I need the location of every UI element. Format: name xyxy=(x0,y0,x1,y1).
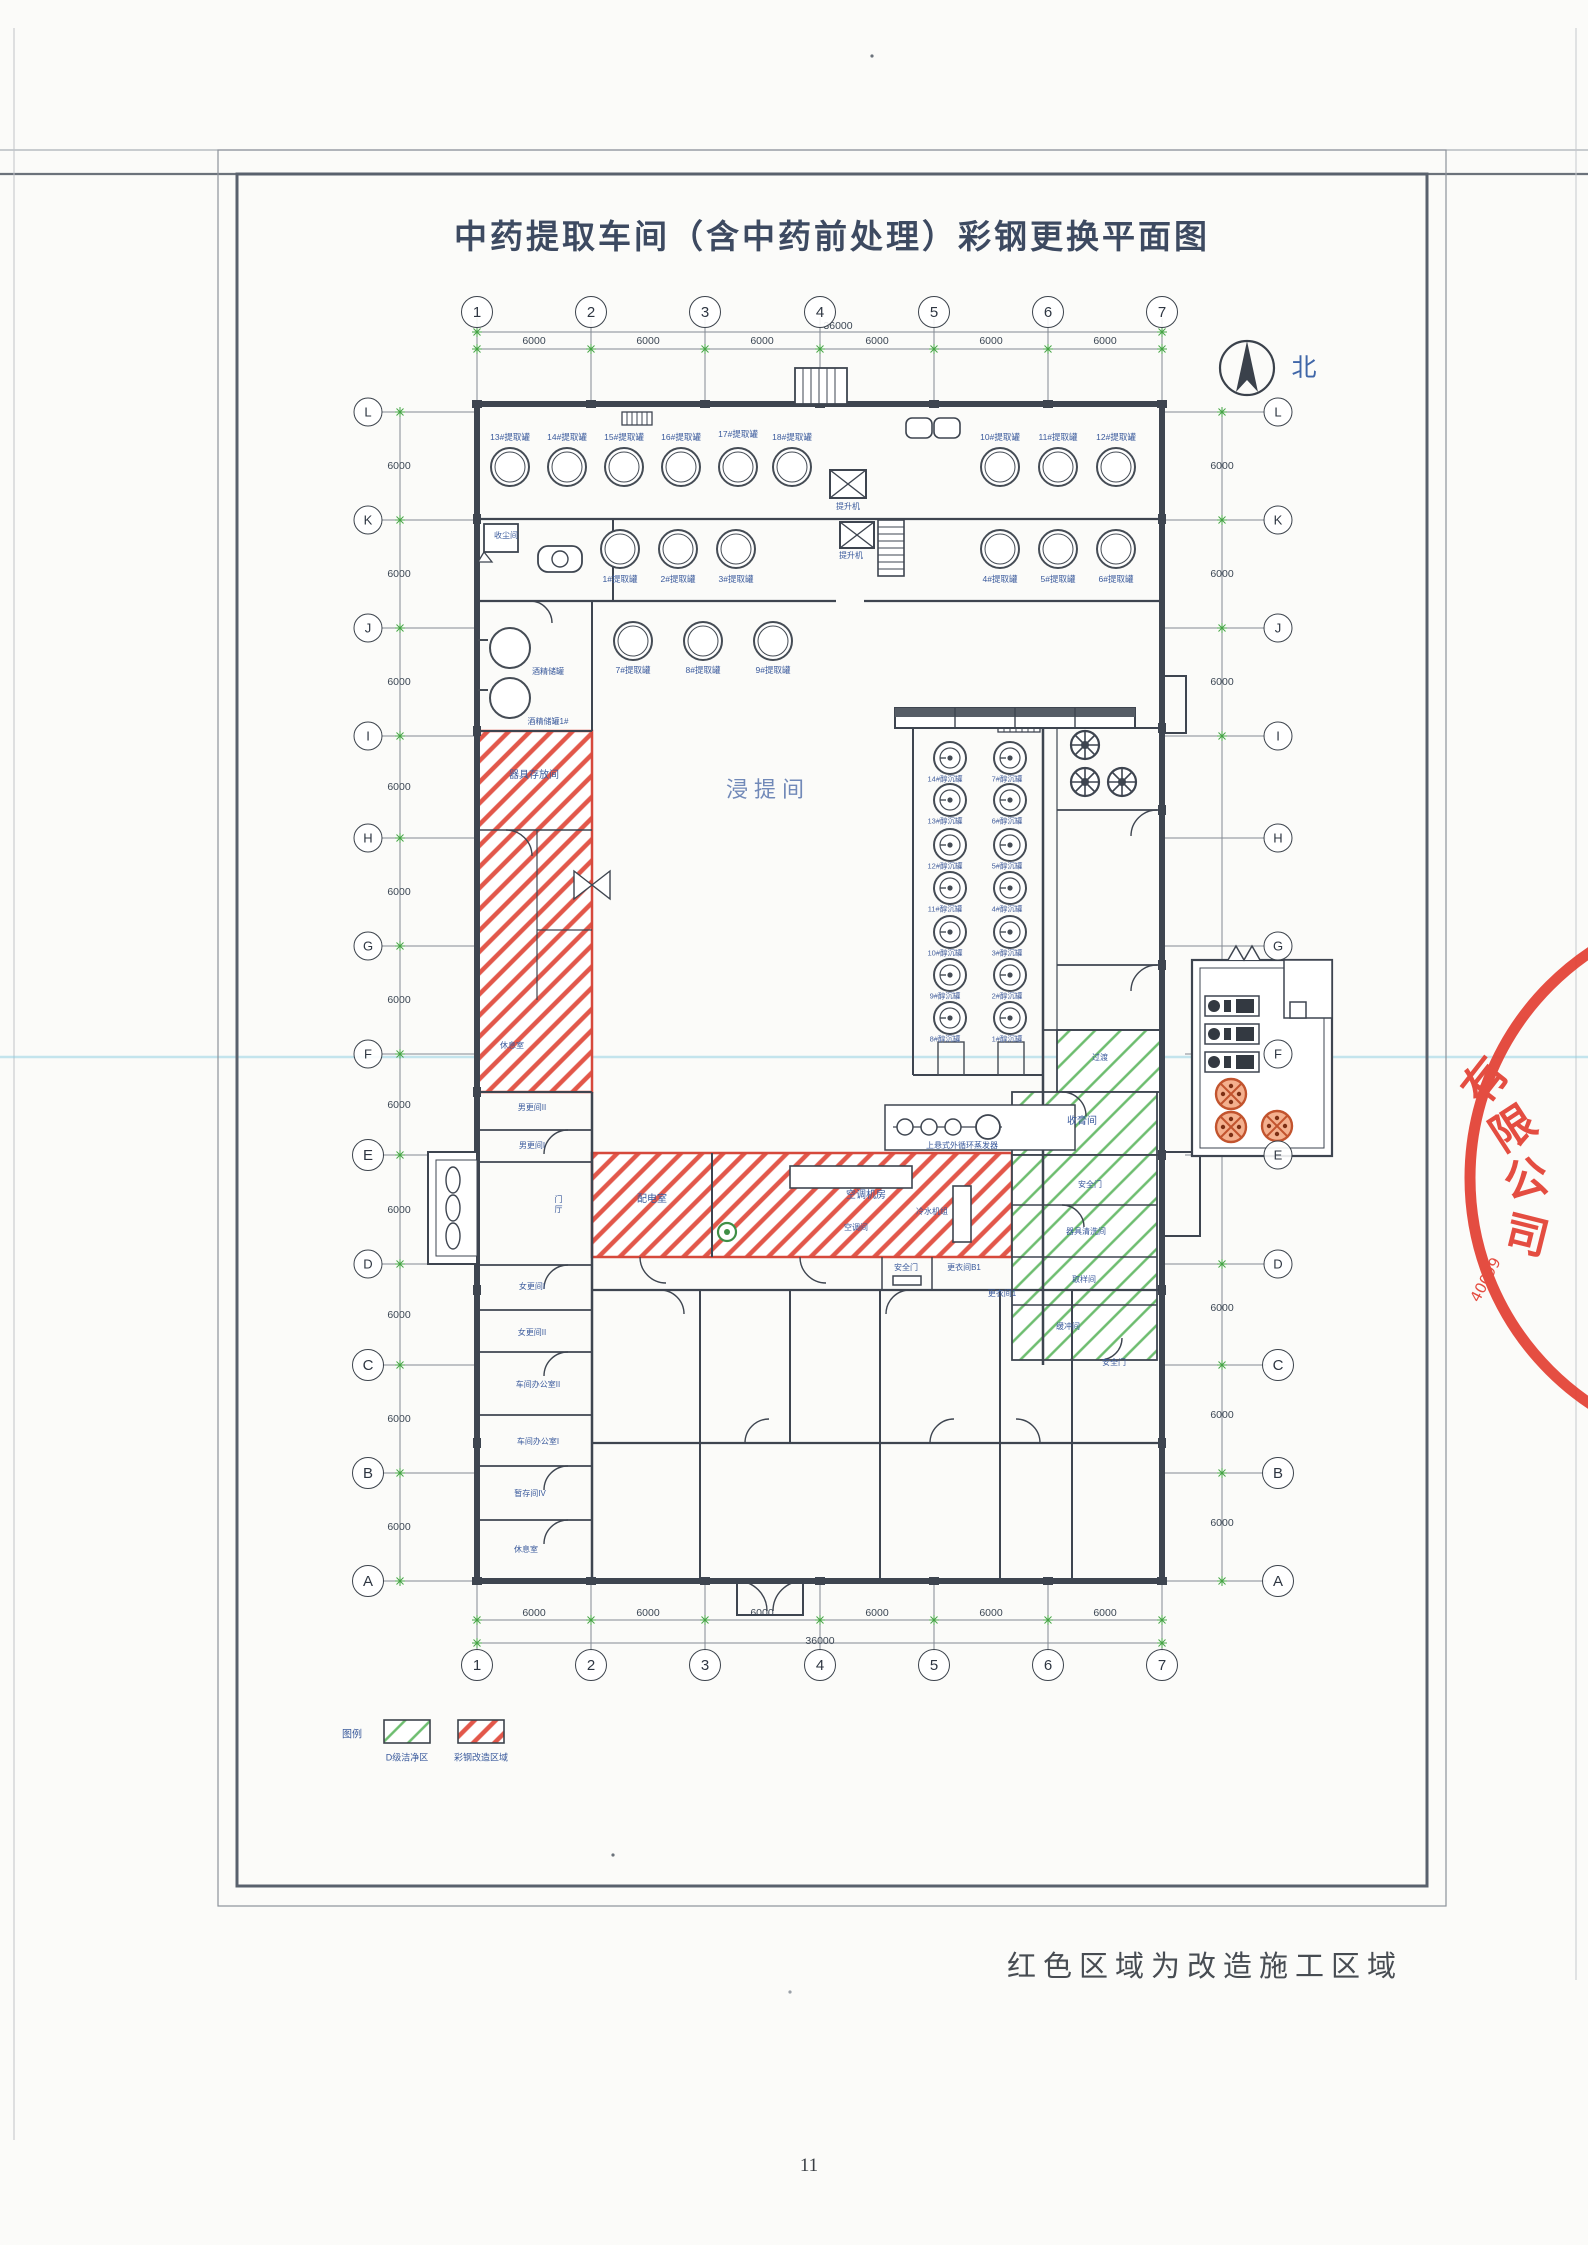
room-label: 空调间 xyxy=(844,1224,868,1232)
tank-label: 10#提取罐 xyxy=(980,433,1020,442)
dim-bay: 6000 xyxy=(1093,335,1116,347)
grid-col-bubble-bot-5: 5 xyxy=(918,1649,950,1681)
dim-bay: 6000 xyxy=(522,335,545,347)
grid-row-bubble-right-G: G xyxy=(1264,932,1293,961)
room-label: 缓冲间 xyxy=(1056,1323,1080,1331)
seal-char-3: 公 xyxy=(1499,1151,1552,1208)
room-label: 取样间 xyxy=(1072,1276,1096,1284)
extraction-tanks-row3 xyxy=(614,622,792,660)
floor-plan-drawing: 有 限 公 司 40099 xyxy=(0,0,1588,2245)
grid-row-bubble-left-A: A xyxy=(352,1565,384,1597)
grid-row-bubble-left-G: G xyxy=(354,932,383,961)
dim-bay: 6000 xyxy=(979,1607,1002,1619)
room-label: 女更间II xyxy=(518,1329,546,1337)
grid-col-bubble-bot-2: 2 xyxy=(575,1649,607,1681)
dim-bay: 6000 xyxy=(1093,1607,1116,1619)
tank-label: 1#提取罐 xyxy=(603,575,638,584)
room-label: 休息室 xyxy=(514,1546,538,1554)
tank-label: 14#醇沉罐 xyxy=(927,775,962,783)
room-label: 门厅 xyxy=(554,1195,562,1215)
grid-row-bubble-left-E: E xyxy=(352,1139,384,1171)
dim-bay: 6000 xyxy=(387,1413,410,1425)
legend-clean-label: D级洁净区 xyxy=(386,1751,429,1764)
tank-label: 7#提取罐 xyxy=(616,666,651,675)
tank-label: 3#醇沉罐 xyxy=(992,949,1023,957)
hoist-label: 提升机 xyxy=(839,552,863,560)
grid-col-bubble-top-7: 7 xyxy=(1146,296,1178,328)
dim-bay: 6000 xyxy=(1210,568,1233,580)
grid-row-bubble-left-F: F xyxy=(354,1040,383,1069)
grid-row-bubble-left-K: K xyxy=(354,506,383,535)
tank-label: 13#醇沉罐 xyxy=(927,817,962,825)
dim-bay: 6000 xyxy=(750,1607,773,1619)
grid-row-bubble-left-L: L xyxy=(354,398,383,427)
cooling-annex xyxy=(1192,946,1332,1156)
dim-bay: 6000 xyxy=(1210,676,1233,688)
dim-bay: 6000 xyxy=(1210,460,1233,472)
grid-col-bubble-top-2: 2 xyxy=(575,296,607,328)
grid-row-bubble-left-D: D xyxy=(354,1250,383,1279)
tank-label: 15#提取罐 xyxy=(604,433,644,442)
alcohol-tank-label: 酒精储罐1# xyxy=(528,718,569,726)
room-label: 暂存间IV xyxy=(514,1490,546,1498)
room-label: 车间办公室I xyxy=(517,1438,559,1446)
room-label: 过渡 xyxy=(1092,1054,1108,1062)
grid-row-bubble-right-I: I xyxy=(1264,722,1293,751)
grid-col-bubble-top-3: 3 xyxy=(689,296,721,328)
room-label: 更衣间B1 xyxy=(947,1264,981,1272)
conveyor xyxy=(895,708,1135,728)
grid-col-bubble-bot-7: 7 xyxy=(1146,1649,1178,1681)
room-label: 车间办公室II xyxy=(516,1381,560,1389)
tank-label: 5#醇沉罐 xyxy=(992,862,1023,870)
dim-bay: 6000 xyxy=(750,335,773,347)
grid-row-bubble-left-H: H xyxy=(354,824,383,853)
dim-bay: 6000 xyxy=(387,568,410,580)
grid-row-bubble-right-E: E xyxy=(1264,1141,1293,1170)
legend-heading: 图例 xyxy=(342,1726,362,1741)
dim-bay: 6000 xyxy=(1210,1517,1233,1529)
entrance-vestibule xyxy=(428,1152,477,1264)
legend-renovation-label: 彩钢改造区域 xyxy=(454,1751,508,1764)
grid-row-bubble-left-B: B xyxy=(352,1457,384,1489)
dim-bay: 6000 xyxy=(387,781,410,793)
dim-bay: 6000 xyxy=(387,1099,410,1111)
dim-bay: 6000 xyxy=(1210,1409,1233,1421)
grid-col-bubble-top-4: 4 xyxy=(804,296,836,328)
tank-label: 4#提取罐 xyxy=(983,575,1018,584)
room-label: 配电室 xyxy=(637,1195,667,1205)
tank-label: 6#醇沉罐 xyxy=(992,817,1023,825)
room-label: 安全门 xyxy=(1078,1181,1102,1189)
red-area-note: 红色区域为改造施工区域 xyxy=(1007,1943,1403,1985)
tank-label: 3#提取罐 xyxy=(719,575,754,584)
tank-label: 9#提取罐 xyxy=(756,666,791,675)
room-label: 收尘间 xyxy=(494,532,518,540)
north-arrow-icon xyxy=(1220,341,1274,395)
grid-col-bubble-bot-4: 4 xyxy=(804,1649,836,1681)
grid-col-bubble-bot-6: 6 xyxy=(1032,1649,1064,1681)
grid-row-bubble-right-D: D xyxy=(1264,1250,1293,1279)
dim-bay: 6000 xyxy=(979,335,1002,347)
room-label: 安全门 xyxy=(894,1264,918,1272)
grid-col-bubble-top-5: 5 xyxy=(918,296,950,328)
dim-bay: 6000 xyxy=(1210,1302,1233,1314)
grid-row-bubble-left-I: I xyxy=(354,722,383,751)
room-label: 器具存放间 xyxy=(509,771,559,781)
tank-label: 4#醇沉罐 xyxy=(992,905,1023,913)
grid-row-bubble-right-K: K xyxy=(1264,506,1293,535)
clean-zones xyxy=(1012,1030,1162,1360)
tank-label: 10#醇沉罐 xyxy=(927,949,962,957)
tank-label: 12#提取罐 xyxy=(1096,433,1136,442)
tank-label: 14#提取罐 xyxy=(547,433,587,442)
dim-bay: 6000 xyxy=(865,335,888,347)
dim-bay: 6000 xyxy=(387,460,410,472)
north-label: 北 xyxy=(1291,348,1316,384)
tank-label: 11#提取罐 xyxy=(1038,433,1077,442)
alcohol-tank-label: 酒精储罐 xyxy=(532,668,564,676)
grid-row-bubble-left-C: C xyxy=(352,1349,384,1381)
room-label: 女更间I xyxy=(519,1283,545,1291)
seal-char-4: 司 xyxy=(1499,1207,1554,1265)
tank-label: 12#醇沉罐 xyxy=(927,862,962,870)
tank-label: 1#醇沉罐 xyxy=(992,1035,1023,1043)
tank-label: 8#醇沉罐 xyxy=(930,1035,961,1043)
tank-label: 2#提取罐 xyxy=(661,575,696,584)
dim-bay: 6000 xyxy=(636,335,659,347)
dim-bay: 6000 xyxy=(387,1521,410,1533)
dim-bay: 6000 xyxy=(387,994,410,1006)
dim-bay: 6000 xyxy=(522,1607,545,1619)
room-label: 更衣间1 xyxy=(988,1290,1016,1298)
grid-row-bubble-left-J: J xyxy=(354,614,383,643)
room-label: 男更间I xyxy=(519,1142,545,1150)
room-label: 男更间II xyxy=(518,1104,546,1112)
tank-label: 11#醇沉罐 xyxy=(928,905,962,913)
room-label: 收膏间 xyxy=(1067,1117,1097,1127)
tank-label: 9#醇沉罐 xyxy=(930,992,961,1000)
room-label-extraction-hall: 浸提间 xyxy=(726,779,810,801)
page-number: 11 xyxy=(800,2155,818,2177)
grid-row-bubble-right-L: L xyxy=(1264,398,1293,427)
grid-row-bubble-right-B: B xyxy=(1262,1457,1294,1489)
dim-bay: 6000 xyxy=(865,1607,888,1619)
grid-col-bubble-top-1: 1 xyxy=(461,296,493,328)
grid-col-bubble-top-6: 6 xyxy=(1032,296,1064,328)
grid-col-bubble-bot-3: 3 xyxy=(689,1649,721,1681)
alcohol-tank-room xyxy=(478,628,530,718)
grid-row-bubble-right-J: J xyxy=(1264,614,1293,643)
dim-bay: 6000 xyxy=(387,886,410,898)
evaporator-label: 上悬式外循环蒸发器 xyxy=(926,1142,998,1150)
grid-row-bubble-right-A: A xyxy=(1262,1565,1294,1597)
room-label: 休息室 xyxy=(500,1042,524,1050)
tank-label: 17#提取罐 xyxy=(718,430,758,439)
hoist-label: 提升机 xyxy=(836,503,860,511)
scanned-drawing-page: { "page": { "title": "中药提取车间（含中药前处理）彩钢更换… xyxy=(0,0,1588,2245)
legend-swatches xyxy=(384,1720,504,1743)
room-label: 空调机房 xyxy=(846,1191,886,1201)
tank-label: 6#提取罐 xyxy=(1099,575,1134,584)
tank-label: 13#提取罐 xyxy=(490,433,530,442)
grid-col-bubble-bot-1: 1 xyxy=(461,1649,493,1681)
tank-label: 8#提取罐 xyxy=(686,666,721,675)
extraction-tanks-row1 xyxy=(491,448,1135,486)
tank-label: 5#提取罐 xyxy=(1041,575,1076,584)
dim-total: 36000 xyxy=(805,1635,834,1647)
company-seal: 有 限 公 司 40099 xyxy=(1453,906,1588,1450)
room-label: 器具清洗间 xyxy=(1066,1228,1106,1236)
dim-bay: 6000 xyxy=(387,1204,410,1216)
tank-label: 18#提取罐 xyxy=(772,433,812,442)
grid-row-bubble-right-H: H xyxy=(1264,824,1293,853)
dim-bay: 6000 xyxy=(387,1309,410,1321)
dim-bay: 6000 xyxy=(387,676,410,688)
room-label: 冷水机组 xyxy=(916,1208,948,1216)
dim-bay: 6000 xyxy=(636,1607,659,1619)
drawing-title: 中药提取车间（含中药前处理）彩钢更换平面图 xyxy=(454,210,1210,258)
tank-label: 2#醇沉罐 xyxy=(992,992,1023,1000)
grid-row-bubble-right-C: C xyxy=(1262,1349,1294,1381)
grid-row-bubble-right-F: F xyxy=(1264,1040,1293,1069)
agitator-units xyxy=(1071,731,1136,796)
tank-label: 7#醇沉罐 xyxy=(992,775,1023,783)
room-label: 安全门 xyxy=(1102,1359,1126,1367)
tank-label: 16#提取罐 xyxy=(661,433,701,442)
